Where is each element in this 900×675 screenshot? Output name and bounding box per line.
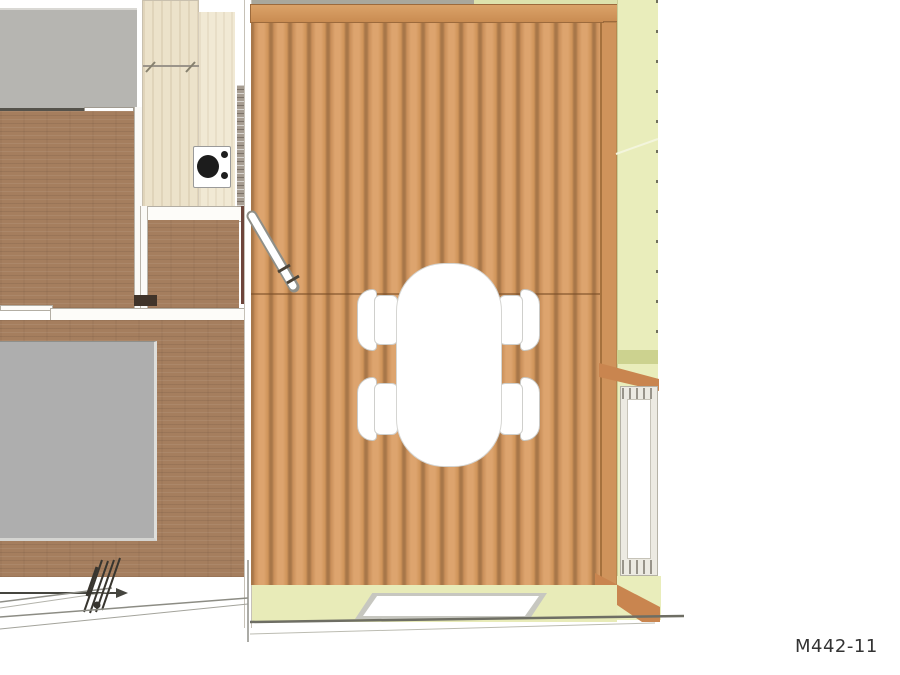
- drawing-number-label: M442-11: [795, 636, 878, 657]
- gray-roof-surface: [0, 8, 137, 108]
- chair-seat: [499, 383, 523, 435]
- chair-seat: [374, 383, 398, 435]
- side-window-pane: [627, 399, 651, 559]
- deck-front-shadow-line: [250, 623, 655, 634]
- middle-wall-thin: [0, 305, 53, 311]
- chair-seat: [374, 295, 398, 345]
- corridor-floor: [147, 220, 239, 308]
- threshold-bar: [134, 295, 157, 306]
- window-hatch-top: [622, 388, 656, 399]
- deck-top-beam: [250, 4, 618, 23]
- stove-burner-large-icon: [197, 155, 219, 178]
- bed-mat: [0, 341, 157, 541]
- kitchen-counter-back: [142, 0, 199, 208]
- green-wall-dark-strip: [617, 350, 658, 364]
- chair-seat: [499, 295, 523, 345]
- entry-porch-area: [0, 577, 252, 675]
- stove-burner-small-icon: [221, 172, 228, 179]
- upper-room-floor: [0, 111, 135, 308]
- stove-burner-small-icon: [221, 151, 228, 158]
- chair-back: [520, 289, 540, 351]
- floor-plan-canvas: M442-11: [0, 0, 900, 675]
- window-hatch-bottom: [622, 560, 656, 574]
- skylight-pane: [363, 596, 539, 616]
- chair-back: [520, 377, 540, 441]
- deck-right-edge-beam: [600, 23, 617, 585]
- dining-table: [396, 263, 502, 467]
